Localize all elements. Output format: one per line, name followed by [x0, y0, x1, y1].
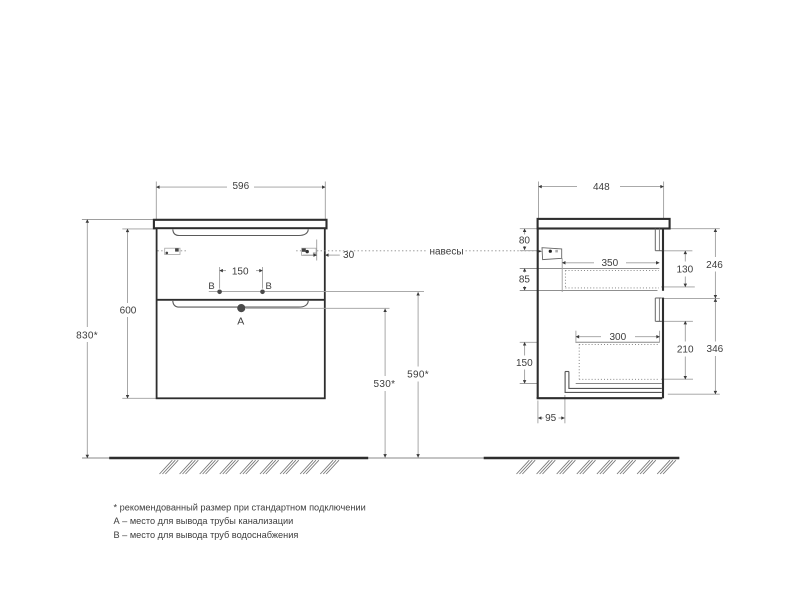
svg-text:А – место для вывода трубы кан: А – место для вывода трубы канализации [114, 516, 294, 526]
svg-text:B: B [208, 281, 214, 292]
svg-text:150: 150 [516, 358, 533, 369]
svg-text:85: 85 [519, 274, 531, 285]
svg-text:B: B [266, 281, 272, 292]
svg-text:210: 210 [677, 344, 694, 355]
svg-text:596: 596 [232, 181, 249, 192]
svg-text:80: 80 [519, 236, 531, 247]
svg-text:590*: 590* [407, 370, 429, 381]
svg-text:* рекомендованный размер при с: * рекомендованный размер при стандартном… [114, 502, 366, 512]
svg-text:95: 95 [545, 413, 557, 424]
svg-text:600: 600 [120, 306, 137, 317]
svg-text:448: 448 [593, 182, 610, 193]
svg-text:346: 346 [707, 344, 724, 355]
svg-text:В – место для вывода труб водо: В – место для вывода труб водоснабжения [114, 530, 299, 540]
svg-text:150: 150 [232, 266, 249, 277]
svg-text:A: A [237, 315, 244, 327]
svg-text:30: 30 [343, 250, 355, 261]
svg-text:830*: 830* [76, 330, 98, 341]
svg-text:350: 350 [601, 258, 618, 269]
svg-text:530*: 530* [374, 379, 396, 390]
svg-text:навесы: навесы [429, 246, 463, 257]
svg-text:246: 246 [706, 260, 723, 271]
svg-text:130: 130 [676, 264, 693, 275]
svg-text:300: 300 [609, 332, 626, 343]
